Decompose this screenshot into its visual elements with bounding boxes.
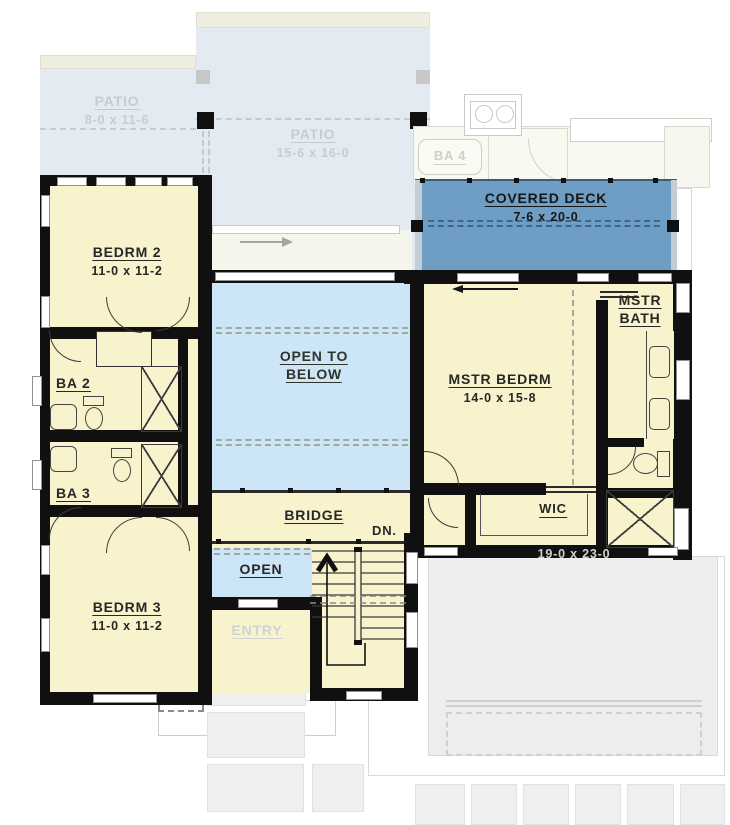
wic-label: WIC [539, 501, 567, 518]
deck-post-dot [467, 178, 472, 183]
window [41, 545, 50, 575]
deck-post-dot [653, 178, 658, 183]
window [32, 376, 42, 406]
room-name: BRIDGE [284, 507, 343, 524]
otb-dashed-upper [216, 327, 408, 334]
room-name: BA 2 [56, 375, 91, 392]
ba2-toilet-tank [83, 396, 104, 406]
lowerlevel-slider-arrow-head [282, 237, 293, 247]
open-dashed-rail [214, 548, 310, 555]
room-name: COVERED DECK [485, 190, 607, 207]
entry-label: ENTRY [232, 621, 283, 639]
staircase [308, 545, 408, 695]
room-name: MSTR BEDRM [449, 371, 552, 388]
bridge-rail-bottom [212, 541, 410, 544]
window [638, 273, 672, 282]
wall-bath-left [596, 300, 608, 445]
window [238, 599, 278, 608]
garage-door-line1 [446, 700, 702, 702]
deck-post-right [667, 220, 679, 232]
bridge-rail-dot [288, 488, 293, 493]
mstr-bedrm-label: MSTR BEDRM 14-0 x 15-8 [449, 370, 552, 406]
bedrm3-label: BEDRM 3 11-0 x 11-2 [91, 598, 162, 634]
wall-vestibule-right [465, 495, 476, 545]
room-name: OPEN [240, 561, 283, 578]
open-to-below-label: OPEN TO BELOW [280, 347, 348, 383]
ba2-sink [50, 404, 77, 430]
paver [207, 764, 304, 812]
room-dims: 7-6 x 20-0 [514, 210, 579, 224]
deck-edge-line [415, 179, 677, 181]
room-name: MSTR [619, 292, 662, 309]
ba2-toilet-bowl [85, 407, 103, 430]
patio-post-gray-right [416, 70, 430, 84]
window [648, 547, 678, 556]
room-dims: 11-0 x 11-2 [91, 264, 162, 278]
room-dims: 14-0 x 15-8 [464, 391, 537, 405]
wall-toilet-compartment [596, 438, 644, 447]
room-dims: 8-0 x 11-6 [85, 113, 149, 127]
master-ceiling-dashed [572, 290, 574, 485]
slider-arrow-line [462, 288, 518, 290]
ba3-sink [50, 446, 77, 472]
window [41, 618, 50, 652]
room-name: PATIO [95, 93, 140, 110]
paver [415, 784, 465, 825]
room-name: BEDRM 3 [93, 599, 162, 616]
patio-left-roofband [40, 55, 196, 69]
bedrm2-closet [96, 331, 152, 367]
master-sink-1 [649, 346, 670, 378]
master-toilet-bowl [633, 453, 658, 474]
patio-center-roofband [196, 12, 430, 28]
room-name: PATIO [291, 126, 336, 143]
window [674, 508, 689, 550]
ba3-toilet-bowl [113, 459, 131, 482]
window [32, 460, 42, 490]
deck-post-dot [561, 178, 566, 183]
paver [680, 784, 725, 825]
garage-dims-label: 19-0 x 23-0 [538, 546, 611, 563]
stair-direction: DN. [372, 523, 397, 538]
wic-closet-rod [480, 494, 588, 536]
patio-center-dashed-edge [196, 118, 430, 120]
patio-post-left [197, 112, 214, 129]
paver [627, 784, 674, 825]
window [167, 177, 193, 186]
window [676, 360, 690, 400]
paver [312, 764, 364, 812]
grill-burner-right [496, 105, 514, 123]
patio-center-label: PATIO 15-6 x 16-0 [277, 125, 350, 161]
bridge-rail-dot [216, 539, 221, 544]
window [93, 694, 157, 703]
ba2-shower [141, 366, 182, 432]
room-name: OPEN TO [280, 348, 348, 365]
covered-deck-label: COVERED DECK 7-6 x 20-0 [485, 189, 607, 225]
bridge-label: BRIDGE [284, 506, 343, 524]
window [424, 547, 458, 556]
patio-post-gray-left [196, 70, 210, 84]
dn-label: DN. [372, 523, 397, 540]
lowerlevel-slider-arrow-line [240, 241, 282, 243]
window [41, 296, 50, 328]
deck-post-left [411, 220, 423, 232]
bridge-rail-dot [336, 488, 341, 493]
lowerlevel-band [200, 230, 412, 270]
room-dims: 15-6 x 16-0 [277, 146, 350, 160]
window [41, 195, 50, 227]
window [215, 272, 395, 281]
wic-pocket-door [546, 491, 596, 493]
window [676, 283, 690, 313]
paver [523, 784, 569, 825]
window [457, 273, 519, 282]
lowerlevel-window-band [212, 225, 400, 234]
ba2-label: BA 2 [56, 374, 91, 392]
room-dims: 11-0 x 11-2 [91, 619, 162, 633]
open-label: OPEN [240, 560, 283, 578]
bridge-rail-dot [384, 488, 389, 493]
floor-plan: PATIO 8-0 x 11-6 PATIO 15-6 x 16-0 BA 4 … [0, 0, 730, 825]
window [57, 177, 87, 186]
ba3-label: BA 3 [56, 484, 91, 502]
ba3-toilet-tank [111, 448, 132, 458]
room-name: WIC [539, 502, 567, 518]
mstr-bath-label: MSTR BATH [619, 291, 662, 327]
bedrm2-label: BEDRM 2 11-0 x 11-2 [91, 243, 162, 279]
wall-right-spine [410, 270, 424, 546]
room-name: BEDRM 2 [93, 244, 162, 261]
deck-post-dot [514, 178, 519, 183]
bridge-rail-dot [306, 539, 311, 544]
grill-burner-left [475, 105, 493, 123]
ba3-shower [141, 444, 182, 508]
master-toilet-tank [657, 451, 670, 477]
window [135, 177, 162, 186]
bridge-rail-dot [240, 488, 245, 493]
paver [575, 784, 621, 825]
patio-left-label: PATIO 8-0 x 11-6 [85, 92, 149, 128]
window [96, 177, 126, 186]
open-to-below-area [212, 283, 412, 492]
bridge-rail-dot [356, 539, 361, 544]
deck-post-dot [420, 178, 425, 183]
room-name: ENTRY [232, 622, 283, 639]
window [577, 273, 609, 282]
garage-door-line2 [446, 705, 702, 707]
room-name: BATH [619, 310, 660, 327]
deck-post-dot [608, 178, 613, 183]
paver [471, 784, 517, 825]
paver [207, 712, 305, 758]
ba4-label: BA 4 [434, 148, 466, 165]
patio-dashed-column-line [202, 131, 210, 173]
garage-overhang-dashed [446, 712, 702, 756]
room-name: BA 4 [434, 149, 466, 165]
wall-center-spine [198, 175, 212, 705]
otb-dashed-lower [216, 439, 408, 446]
master-sink-2 [649, 398, 670, 430]
room-name: BA 3 [56, 485, 91, 502]
room-name: BELOW [286, 366, 342, 383]
room-dims: 19-0 x 23-0 [538, 547, 611, 561]
master-shower [606, 490, 674, 548]
slider-arrow-head [452, 285, 463, 293]
wic-pocket-door [546, 486, 596, 488]
